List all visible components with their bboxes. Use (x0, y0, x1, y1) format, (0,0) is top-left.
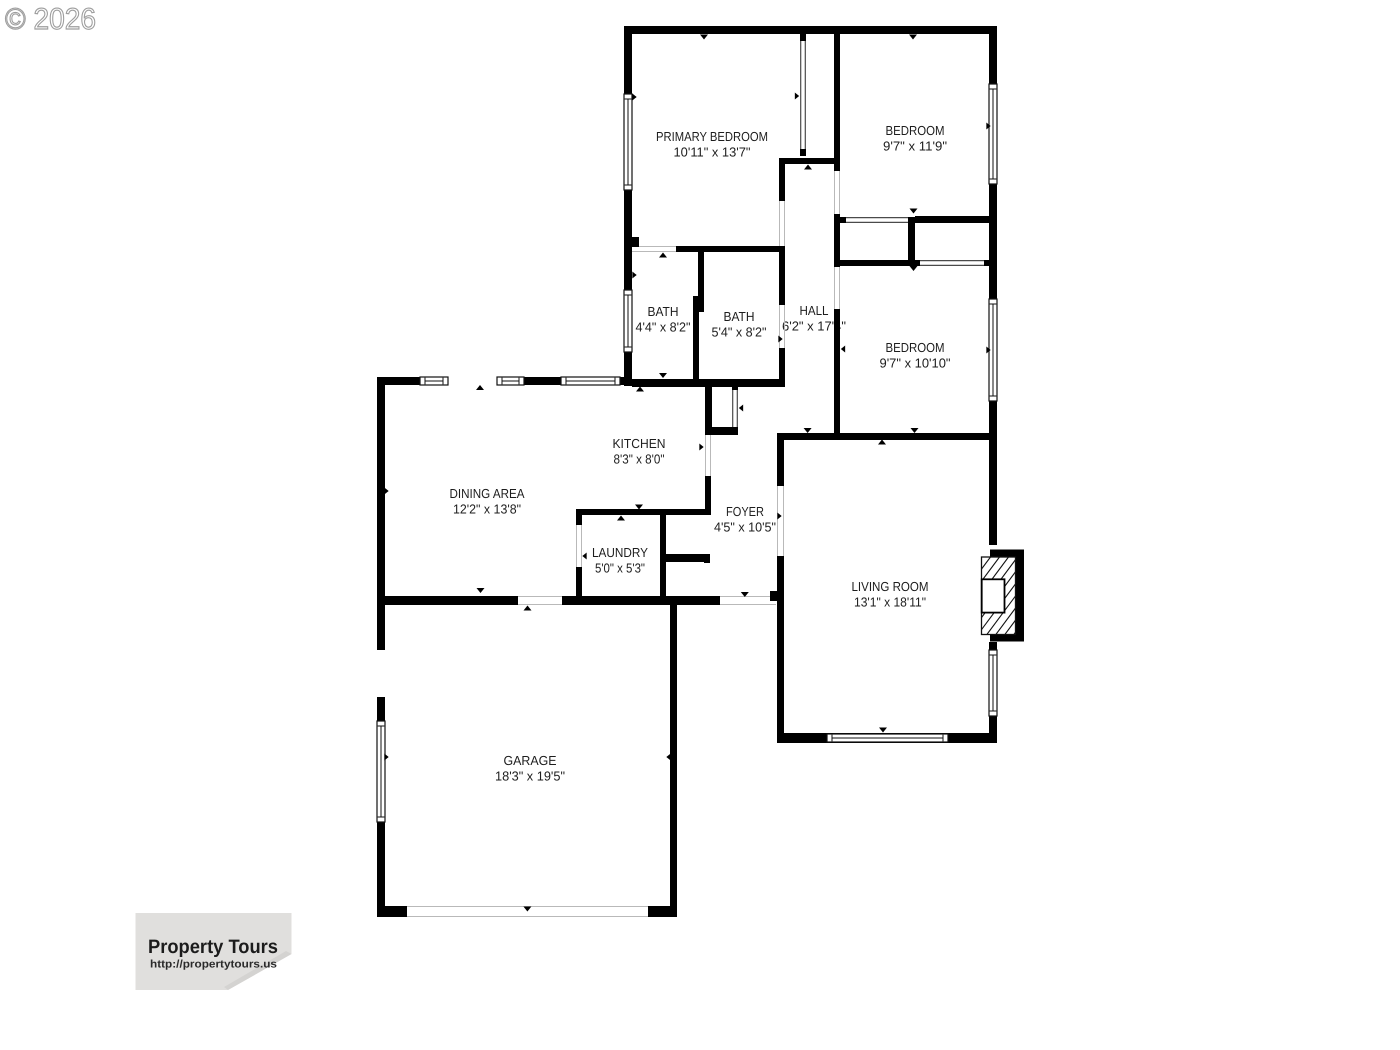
svg-text:5'4" x 8'2": 5'4" x 8'2" (712, 325, 767, 340)
svg-text:HALL: HALL (800, 303, 829, 318)
svg-text:12'2" x 13'8": 12'2" x 13'8" (453, 502, 521, 517)
svg-text:10'11" x 13'7": 10'11" x 13'7" (674, 145, 751, 160)
svg-text:BATH: BATH (724, 309, 755, 324)
svg-text:9'7" x 11'9": 9'7" x 11'9" (883, 139, 947, 154)
svg-text:9'7" x 10'10": 9'7" x 10'10" (880, 356, 951, 371)
svg-text:GARAGE: GARAGE (504, 753, 557, 768)
svg-text:FOYER: FOYER (726, 504, 764, 519)
svg-text:LAUNDRY: LAUNDRY (592, 545, 648, 560)
svg-text:BEDROOM: BEDROOM (886, 340, 945, 355)
svg-text:8'3" x 8'0": 8'3" x 8'0" (614, 452, 665, 467)
svg-text:4'4" x 8'2": 4'4" x 8'2" (636, 320, 691, 335)
svg-text:4'5" x 10'5": 4'5" x 10'5" (714, 520, 776, 535)
svg-text:DINING AREA: DINING AREA (450, 486, 525, 501)
svg-text:13'1" x 18'11": 13'1" x 18'11" (854, 595, 926, 610)
svg-text:18'3" x 19'5": 18'3" x 19'5" (495, 769, 565, 784)
svg-text:PRIMARY BEDROOM: PRIMARY BEDROOM (656, 129, 768, 144)
svg-text:http://propertytours.us: http://propertytours.us (150, 959, 277, 971)
svg-text:KITCHEN: KITCHEN (613, 436, 666, 451)
svg-text:© 2026: © 2026 (5, 3, 96, 36)
svg-text:LIVING ROOM: LIVING ROOM (852, 579, 929, 594)
svg-text:5'0" x 5'3": 5'0" x 5'3" (595, 561, 645, 576)
svg-text:Property Tours: Property Tours (148, 936, 278, 958)
svg-text:BEDROOM: BEDROOM (886, 123, 945, 138)
svg-text:BATH: BATH (648, 304, 679, 319)
